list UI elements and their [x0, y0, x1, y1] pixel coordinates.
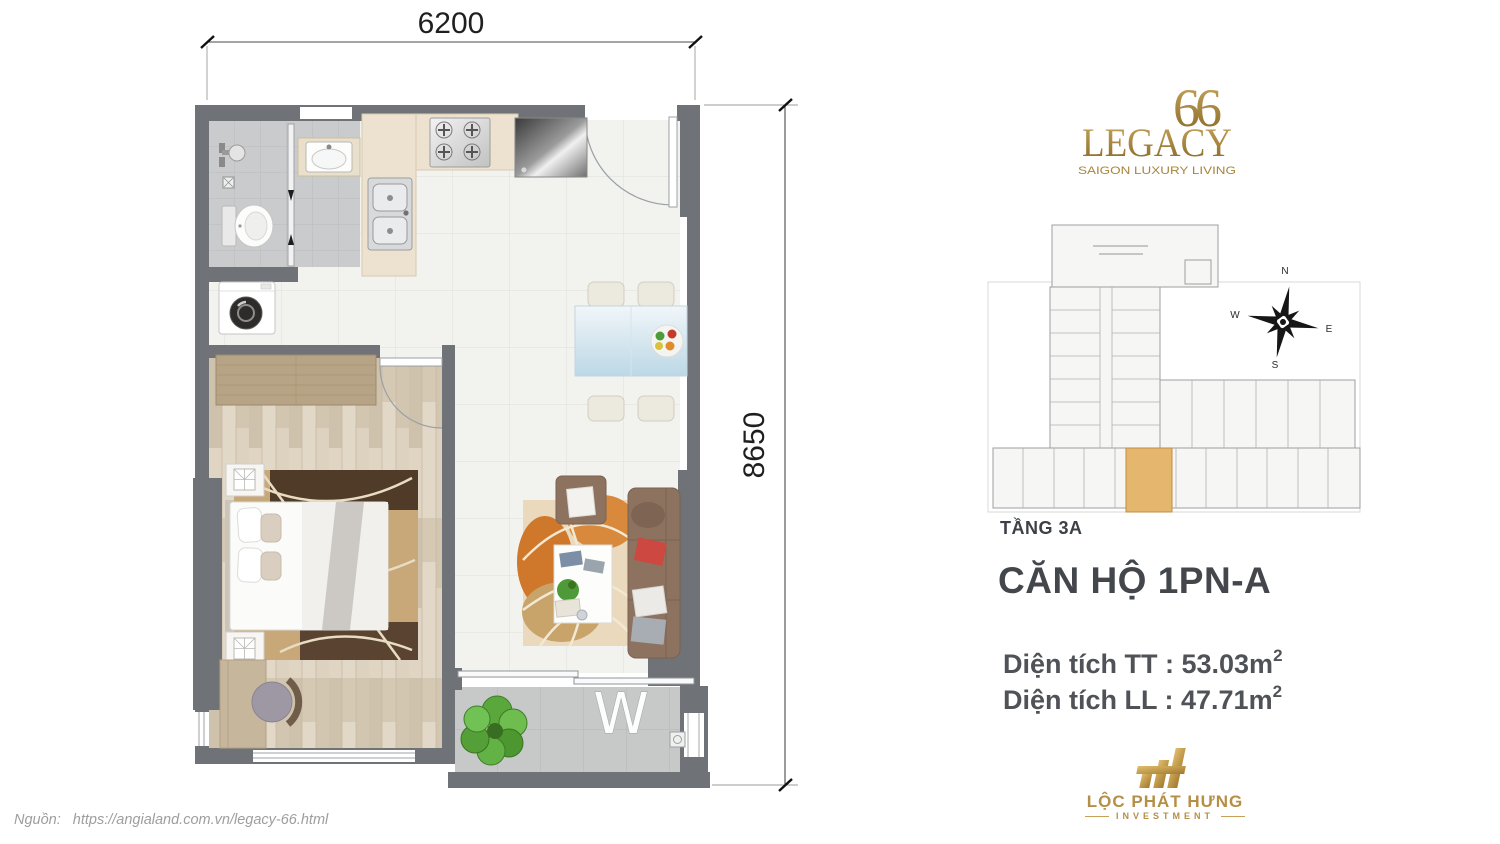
bathroom-vanity — [298, 138, 360, 176]
developer-logo-icon — [1135, 742, 1201, 792]
dimension-width-label: 6200 — [418, 7, 485, 40]
brand-tagline: SAIGON LUXURY LIVING — [1078, 165, 1236, 177]
compass-s: S — [1272, 360, 1279, 371]
legacy-logo: 66 LEGACY SAIGON LUXURY LIVING — [1020, 64, 1300, 180]
bed — [225, 500, 388, 632]
compass-e: E — [1326, 324, 1333, 335]
site-plan: N W E S TẦNG 3A — [983, 216, 1365, 538]
divider-line — [1221, 816, 1245, 817]
developer-division-text: INVESTMENT — [1116, 811, 1214, 821]
coffee-table — [554, 545, 612, 623]
source-label: Nguồn: — [14, 812, 61, 828]
nightstand-top — [226, 464, 264, 496]
cooktop — [430, 118, 490, 167]
area-line-tt: Diện tích TT : 53.03m2 — [1003, 640, 1283, 676]
balcony-right-opening — [684, 713, 704, 757]
bathroom-floor-drain-icon — [223, 177, 234, 188]
washing-machine — [219, 282, 275, 334]
unit-title: CĂN HỘ 1PN-A — [998, 560, 1271, 602]
area-tt-text: Diện tích TT : 53.03m — [1003, 649, 1273, 679]
south-slab-block — [993, 448, 1360, 508]
balcony-washer-mark: W — [593, 682, 648, 747]
dimension-height-label: 8650 — [738, 412, 771, 479]
balcony-drain-icon — [670, 732, 685, 747]
dimension-right: 8650 — [704, 99, 798, 791]
top-wall-niche — [300, 107, 352, 119]
toilet — [222, 205, 273, 247]
fridge — [515, 118, 587, 177]
bedroom-left-window — [195, 712, 209, 746]
sofa — [628, 488, 680, 658]
tower-block — [1050, 287, 1160, 448]
compass-w: W — [1230, 310, 1240, 321]
area-ll-text: Diện tích LL : 47.71m — [1003, 685, 1273, 715]
page: W 6200 8650 66 LEGACY SAIGON LUXURY — [0, 0, 1500, 844]
apartment-floor-plan: W 6200 8650 — [0, 0, 830, 844]
developer-division: INVESTMENT — [1040, 811, 1290, 821]
floor-level-label: TẦNG 3A — [1000, 517, 1083, 538]
highlighted-unit — [1126, 448, 1172, 512]
kitchen-sink — [368, 178, 412, 250]
brand-name: LEGACY — [1082, 120, 1232, 165]
sliding-door — [288, 124, 294, 266]
area-ll-sup: 2 — [1273, 682, 1282, 701]
annex-block — [1185, 260, 1211, 284]
divider-line — [1085, 816, 1109, 817]
armchair — [556, 476, 606, 524]
wardrobe — [216, 355, 376, 405]
desk-chair — [252, 680, 299, 724]
unit-areas: Diện tích TT : 53.03m2 Diện tích LL : 47… — [1003, 640, 1283, 712]
east-wing-block — [1160, 380, 1355, 448]
dimension-top: 6200 — [201, 7, 702, 100]
area-tt-sup: 2 — [1273, 646, 1282, 665]
compass-n: N — [1281, 266, 1288, 277]
developer-name: LỘC PHÁT HƯNG — [1040, 792, 1290, 812]
bedroom-bottom-window — [253, 750, 415, 762]
source-url: https://angialand.com.vn/legacy-66.html — [73, 812, 329, 828]
area-line-ll: Diện tích LL : 47.71m2 — [1003, 676, 1283, 712]
fruit-bowl — [651, 325, 683, 357]
source-credit: Nguồn:https://angialand.com.vn/legacy-66… — [14, 812, 328, 828]
